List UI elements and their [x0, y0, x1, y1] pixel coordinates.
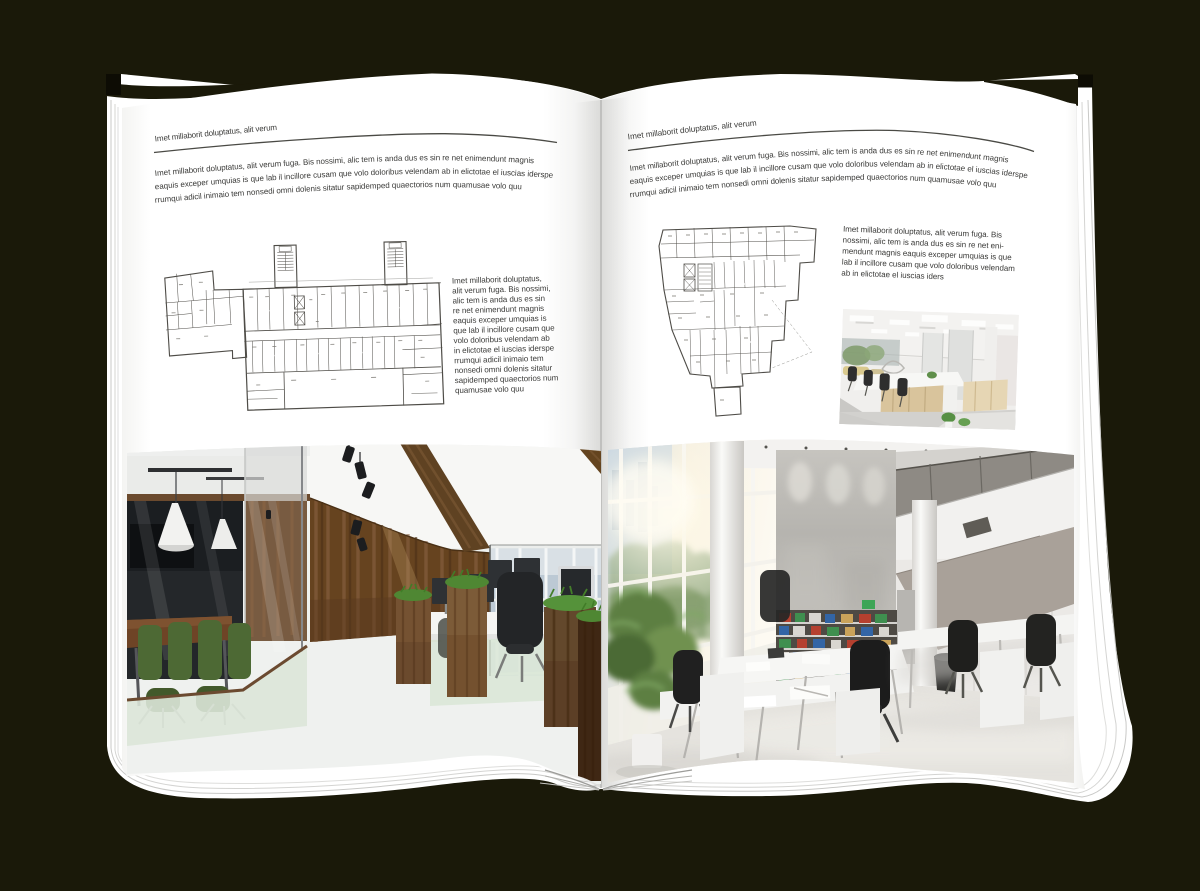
svg-text:quamusae volo quu: quamusae volo quu	[455, 384, 524, 395]
